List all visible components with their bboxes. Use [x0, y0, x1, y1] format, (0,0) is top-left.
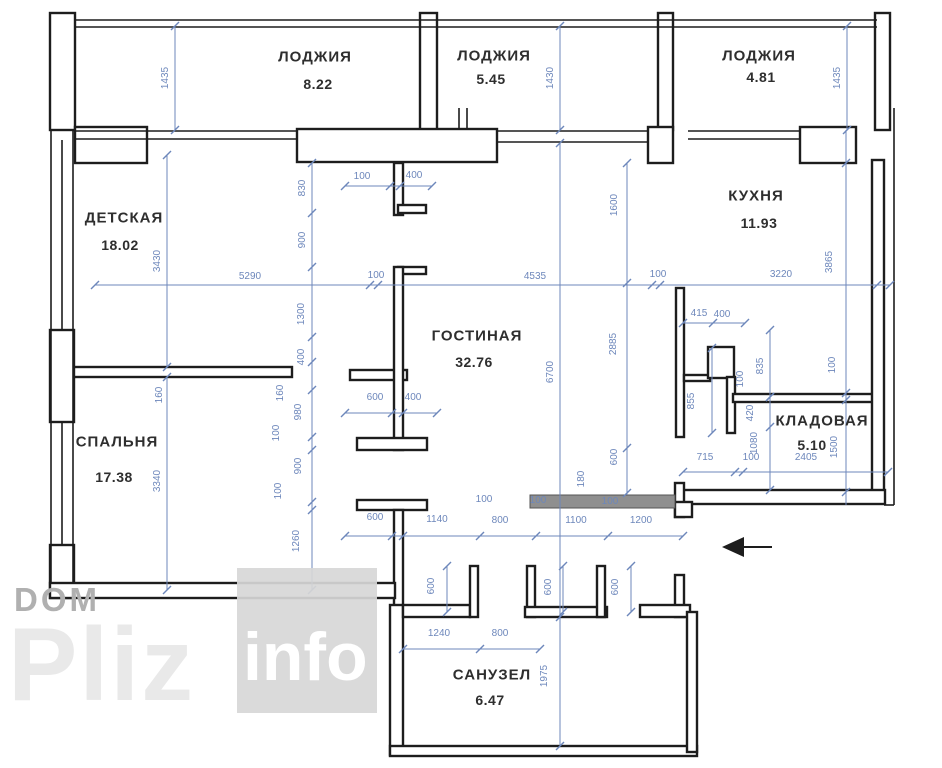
dimension-label: 1435: [161, 67, 171, 89]
wall-segment: [297, 129, 497, 162]
wall-segment: [800, 127, 856, 163]
dimension-label: 400: [714, 310, 731, 320]
dimension-label: 980: [294, 404, 304, 421]
dimension-label: 600: [427, 578, 437, 595]
wall-segment: [683, 490, 885, 504]
dimension-label: 1080: [750, 432, 760, 454]
wall-segment: [50, 13, 75, 130]
wall-segment: [687, 612, 697, 752]
wall-segment: [75, 127, 147, 163]
room-name-nursery: ДЕТСКАЯ: [85, 210, 163, 227]
watermark-info: info: [243, 623, 368, 691]
dimension-label: 3430: [153, 250, 163, 272]
wall-segment: [390, 605, 403, 755]
dimension-label: 100: [602, 497, 619, 507]
dimension-label: 600: [544, 579, 554, 596]
room-area-loggia-2: 5.45: [476, 71, 505, 87]
dimension-label: 1240: [428, 629, 450, 639]
dimension-label: 100: [368, 271, 385, 281]
dimension-label: 1140: [426, 515, 448, 525]
dimension-label: 100: [530, 496, 547, 506]
wall-segment: [403, 605, 470, 617]
room-name-loggia-2: ЛОДЖИЯ: [457, 48, 531, 65]
wall-segment: [420, 13, 437, 130]
room-area-bathroom: 6.47: [475, 692, 504, 708]
dimension-label: 180: [577, 471, 587, 488]
dimension-label: 1430: [546, 67, 556, 89]
dimension-label: 415: [691, 309, 708, 319]
dimension-label: 100: [736, 371, 746, 388]
dimension-label: 100: [272, 425, 282, 442]
wall-segment: [648, 127, 673, 163]
room-area-loggia-1: 8.22: [303, 76, 332, 92]
room-area-kitchen: 11.93: [741, 215, 778, 231]
wall-segment: [470, 566, 478, 617]
wall-segment: [676, 288, 684, 437]
dimension-label: 1100: [565, 516, 587, 526]
room-name-living: ГОСТИНАЯ: [432, 328, 523, 345]
room-name-kitchen: КУХНЯ: [728, 188, 783, 205]
wall-segment: [684, 375, 710, 381]
room-name-bedroom: СПАЛЬНЯ: [76, 434, 159, 451]
dimension-label: 400: [405, 393, 422, 403]
room-name-loggia-3: ЛОДЖИЯ: [722, 48, 796, 65]
room-area-living: 32.76: [455, 354, 493, 370]
dimension-label: 6700: [546, 361, 556, 383]
wall-segment: [390, 746, 697, 756]
dimension-label: 800: [492, 516, 509, 526]
dimension-label: 100: [828, 357, 838, 374]
dimension-label: 1500: [830, 436, 840, 458]
wall-segment: [658, 13, 673, 130]
wall-segment: [872, 160, 884, 492]
dimension-label: 3340: [153, 470, 163, 492]
dimension-label: 160: [276, 385, 286, 402]
dimension-label: 855: [687, 393, 697, 410]
wall-segment: [50, 330, 74, 422]
dimension-label: 100: [650, 270, 667, 280]
dimension-label: 1435: [833, 67, 843, 89]
wall-segment: [394, 267, 403, 450]
dimension-label: 100: [476, 495, 493, 505]
dimension-label: 100: [743, 453, 760, 463]
dimension-label: 400: [297, 349, 307, 366]
room-name-bathroom: САНУЗЕЛ: [453, 667, 531, 684]
dimension-label: 1975: [540, 665, 550, 687]
entrance-arrow: [722, 537, 772, 557]
wall-segment: [357, 438, 427, 450]
dimension-label: 2405: [795, 453, 817, 463]
wall-segment: [727, 377, 735, 433]
dimension-label: 160: [155, 387, 165, 404]
dimension-label: 2885: [609, 333, 619, 355]
wall-segment: [357, 500, 427, 510]
dimension-label: 600: [611, 579, 621, 596]
dimension-label: 5290: [239, 272, 261, 282]
dimension-label: 800: [492, 629, 509, 639]
dimension-label: 100: [274, 483, 284, 500]
wall-segment: [74, 367, 292, 377]
dimension-label: 420: [746, 405, 756, 422]
room-name-storage: КЛАДОВАЯ: [775, 413, 868, 430]
wall-segment: [733, 394, 883, 402]
wall-segment: [640, 605, 690, 617]
room-area-storage: 5.10: [797, 437, 826, 453]
dimension-label: 715: [697, 453, 714, 463]
room-area-loggia-3: 4.81: [746, 69, 775, 85]
wall-segment: [394, 510, 403, 617]
wall-segment: [398, 205, 426, 213]
dimension-label: 1200: [630, 516, 652, 526]
dimension-label: 900: [298, 232, 308, 249]
dimension-label: 100: [354, 172, 371, 182]
dimension-label: 600: [610, 449, 620, 466]
watermark-pliz: Pliz: [8, 613, 195, 717]
dimension-label: 400: [406, 171, 423, 181]
dimension-label: 3220: [770, 270, 792, 280]
dimension-label: 835: [756, 358, 766, 375]
dimension-label: 4535: [524, 272, 546, 282]
dimension-label: 600: [367, 513, 384, 523]
watermark-info-box: info: [237, 568, 377, 713]
wall-segment: [875, 13, 890, 130]
dimension-label: 600: [367, 393, 384, 403]
dimension-label: 830: [298, 180, 308, 197]
wall-segment: [675, 502, 692, 517]
dimension-label: 1600: [610, 194, 620, 216]
dimension-label: 900: [294, 458, 304, 475]
dimension-label: 3865: [825, 251, 835, 273]
dimension-label: 1300: [297, 303, 307, 325]
room-area-bedroom: 17.38: [95, 469, 133, 485]
floor-plan: ЛОДЖИЯ8.22ЛОДЖИЯ5.45ЛОДЖИЯ4.81ДЕТСКАЯ18.…: [0, 0, 942, 768]
room-name-loggia-1: ЛОДЖИЯ: [278, 49, 352, 66]
dimension-label: 1260: [292, 530, 302, 552]
room-area-nursery: 18.02: [101, 237, 139, 253]
wall-segment: [597, 566, 605, 617]
